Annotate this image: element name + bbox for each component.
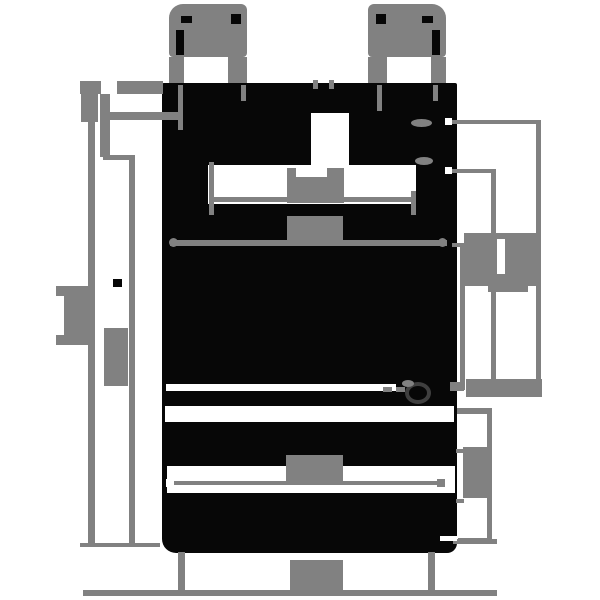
dim-recess-tick-right	[411, 191, 416, 215]
ext-tick-center-right	[329, 80, 334, 89]
ext-tick-tab-right-outer	[433, 85, 438, 101]
tab-right-slot	[432, 30, 440, 55]
ext-tick-tab-left-outer	[178, 85, 183, 130]
tab-right-mark-corner	[376, 14, 386, 24]
dim-right-text-slot	[497, 239, 505, 274]
dim-hole-centerline-a	[383, 387, 392, 392]
dim-topleft-bar-a	[80, 81, 101, 94]
dim-bottom-ext-right	[428, 552, 435, 592]
ext-tick-tab-right-inner	[377, 85, 382, 111]
dim-lowerwidth-arrow-right	[437, 479, 445, 487]
dim-left-inner-vline	[129, 158, 135, 547]
dim-innerwidth-cap-right	[438, 238, 447, 247]
dim-lowerright-arm-top	[457, 408, 490, 414]
dim-left-outer-text-body	[64, 296, 90, 336]
dim-left-inner-text	[104, 328, 128, 386]
dim-right-ext-mid	[450, 169, 495, 173]
dim-hole-centerline-b	[396, 387, 405, 392]
dim-innerwidth-text	[287, 216, 343, 242]
dim-right-ext-mid-arrow	[445, 167, 452, 174]
tab-left-mark-corner	[231, 14, 241, 24]
dim-topleft-arm	[100, 112, 178, 120]
tab-right-leg-right	[431, 57, 446, 83]
dim-left-outer-text-serif-top	[56, 286, 90, 296]
dim-lowerright-inner-text	[463, 447, 488, 498]
dim-topleft-bar-b	[117, 81, 163, 94]
dim-left-outer-text-serif-bottom	[56, 335, 90, 345]
dim-hole-band-wall-tick	[450, 382, 464, 391]
dim-left-outer-blob	[81, 94, 98, 122]
tab-right-mark-top	[422, 16, 433, 23]
dim-lowerwidth-text	[286, 455, 343, 483]
dim-innerwidth-line	[170, 240, 447, 246]
dim-lowerright-inner-tick-bottom	[456, 499, 464, 503]
dim-lowerright-inner-tick-top	[456, 449, 464, 453]
dim-bottom-ext-left	[178, 552, 185, 592]
screw-right-arc-bottom	[415, 157, 433, 165]
dim-lowerright-arm-bottom	[458, 538, 491, 543]
dim-innerwidth-cap-left	[169, 238, 178, 247]
cutout-groove-line	[166, 384, 396, 391]
dim-right-ext-top	[450, 120, 540, 124]
dim-bottom-text	[290, 560, 343, 592]
tab-left-mark-top	[181, 16, 192, 23]
dim-hole-arrow-band	[466, 379, 542, 397]
dim-lowerright-arm-bottom-white	[440, 536, 457, 541]
dim-right-ext-top-arrow	[445, 118, 452, 125]
ext-tick-center-left	[313, 80, 318, 89]
cutout-top-center-notch	[311, 113, 349, 168]
screw-right-arc-top	[411, 119, 432, 127]
dim-left-text-ink-speck	[113, 279, 122, 287]
dim-recess-text-body	[287, 177, 344, 203]
dim-topleft-vline	[100, 94, 110, 157]
dimension-drawing-canvas	[0, 0, 600, 600]
tab-right-leg-left	[368, 57, 387, 83]
dim-lowerwidth-line	[172, 481, 443, 485]
ext-tick-tab-left-inner	[241, 85, 246, 101]
dim-lowerwidth-arrow-left	[166, 479, 174, 487]
dim-right-text-tail	[488, 284, 528, 292]
tab-left-slot	[176, 30, 184, 55]
cutout-step-band	[165, 406, 454, 422]
tab-left-leg-right	[228, 57, 247, 83]
tab-left-leg-left	[169, 57, 184, 83]
dim-recess-tick-left	[209, 162, 214, 215]
mounting-hole-glint	[402, 380, 414, 387]
